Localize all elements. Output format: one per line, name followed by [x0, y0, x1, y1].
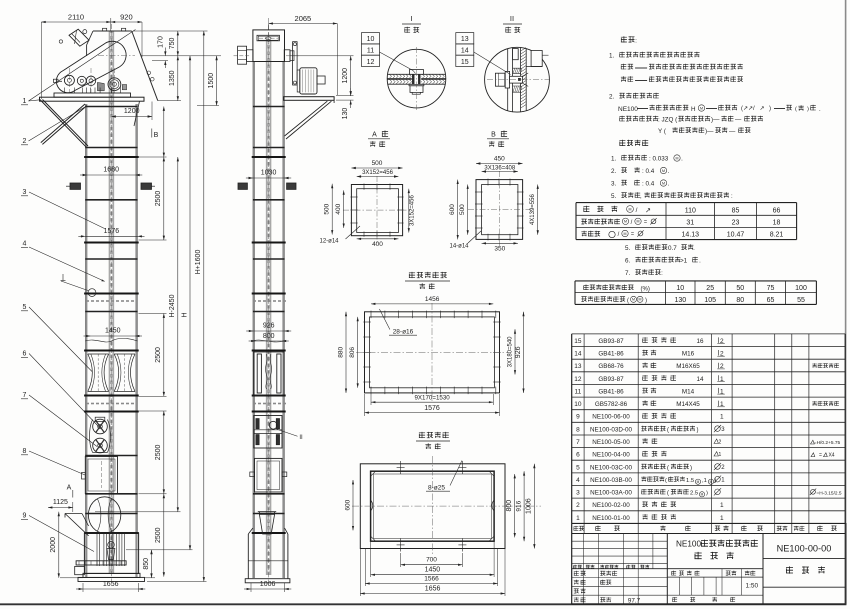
svg-text:)—: )— [711, 117, 720, 124]
svg-text:85: 85 [732, 207, 740, 214]
svg-text:600: 600 [344, 499, 351, 510]
svg-text:500: 500 [324, 203, 331, 214]
svg-text:450: 450 [494, 156, 505, 163]
svg-text:14: 14 [461, 48, 469, 55]
svg-text:14.13: 14.13 [682, 232, 700, 239]
svg-text:14: 14 [696, 376, 704, 383]
svg-text:GB41-86: GB41-86 [598, 351, 624, 358]
svg-text:1125: 1125 [53, 499, 68, 506]
svg-text:920: 920 [120, 13, 133, 22]
svg-text:—: — [729, 128, 736, 135]
svg-text:II: II [510, 14, 514, 23]
svg-text:M: M [637, 220, 640, 224]
svg-text:12: 12 [367, 59, 375, 66]
svg-text::: : [635, 38, 637, 45]
svg-text:1:50: 1:50 [745, 583, 758, 590]
svg-text:1450: 1450 [425, 567, 441, 574]
svg-text:80: 80 [736, 297, 744, 304]
svg-text:3X136=408: 3X136=408 [484, 165, 516, 171]
svg-text:66: 66 [773, 207, 781, 214]
svg-text:750: 750 [169, 37, 176, 49]
svg-text:23: 23 [732, 219, 740, 226]
svg-text:170: 170 [157, 36, 164, 48]
svg-text:2: 2 [720, 363, 724, 370]
svg-text:↗: ↗ [759, 106, 764, 112]
svg-text:4: 4 [576, 477, 580, 484]
svg-text:↗: ↗ [645, 208, 651, 215]
svg-text:850: 850 [143, 558, 150, 570]
svg-text:): ) [690, 465, 692, 471]
svg-text:NE100-03C-00: NE100-03C-00 [590, 464, 633, 471]
svg-text:M: M [624, 220, 627, 224]
svg-text:1656: 1656 [425, 586, 441, 593]
svg-text:75: 75 [767, 285, 775, 292]
svg-text:): ) [807, 107, 809, 113]
svg-text::: : [646, 141, 648, 148]
svg-text:1.5: 1.5 [686, 478, 694, 484]
svg-text:NE100-04-00: NE100-04-00 [592, 452, 630, 459]
svg-text:6: 6 [576, 452, 580, 459]
svg-text:1006: 1006 [526, 498, 533, 514]
svg-text:3X152=456: 3X152=456 [362, 170, 394, 176]
svg-text:1576: 1576 [104, 228, 120, 235]
svg-text:3.: 3. [611, 181, 617, 188]
svg-text:2: 2 [576, 502, 580, 509]
svg-text:1576: 1576 [424, 405, 440, 412]
svg-text:NE100-03A-00: NE100-03A-00 [590, 490, 632, 497]
svg-text:3: 3 [23, 189, 27, 196]
svg-text:11: 11 [575, 389, 582, 396]
svg-text:3: 3 [576, 490, 580, 497]
svg-text:16: 16 [696, 338, 704, 345]
svg-text:1656: 1656 [103, 581, 119, 588]
svg-text:)—: )— [705, 128, 714, 135]
svg-text:M14: M14 [682, 389, 695, 396]
svg-text:H-2450: H-2450 [169, 294, 176, 317]
svg-text:4X139=556: 4X139=556 [530, 194, 536, 226]
svg-text:8-ø25: 8-ø25 [428, 485, 445, 492]
svg-text:M: M [697, 480, 700, 484]
svg-text:>1: >1 [680, 258, 688, 265]
svg-text:700: 700 [426, 557, 437, 564]
svg-text:NE100-01-00: NE100-01-00 [592, 515, 630, 522]
svg-text:400: 400 [335, 203, 342, 214]
svg-text:2.: 2. [611, 168, 617, 175]
svg-text:,1: ,1 [702, 478, 707, 484]
svg-text:8: 8 [23, 448, 27, 455]
svg-text:2065: 2065 [295, 14, 312, 23]
svg-text:H: H [691, 106, 696, 113]
svg-text:28-ø16: 28-ø16 [393, 329, 414, 336]
svg-text:M: M [639, 298, 642, 302]
svg-text:15: 15 [461, 59, 469, 66]
svg-text:1500: 1500 [208, 73, 215, 89]
svg-text:800: 800 [506, 500, 513, 512]
svg-text:15: 15 [574, 338, 582, 345]
svg-text:): ) [697, 427, 699, 433]
svg-text:M: M [662, 181, 665, 185]
svg-text:1: 1 [720, 502, 724, 509]
svg-text:926: 926 [263, 323, 275, 330]
svg-text:M: M [632, 298, 635, 302]
svg-text:=: = [644, 220, 647, 226]
svg-text:7: 7 [23, 392, 27, 399]
svg-text:GB93-87: GB93-87 [598, 376, 624, 383]
svg-text:8: 8 [576, 426, 580, 433]
svg-text:100: 100 [795, 285, 807, 292]
svg-text:130: 130 [674, 297, 686, 304]
svg-text:2000: 2000 [50, 537, 57, 553]
svg-text:): ) [645, 298, 647, 304]
svg-text:2500: 2500 [155, 347, 162, 363]
svg-text:: 0.4: : 0.4 [642, 181, 655, 188]
svg-text:1: 1 [719, 452, 722, 458]
svg-text:110: 110 [685, 207, 696, 214]
svg-text:7: 7 [576, 439, 580, 446]
svg-text:NE100: NE100 [618, 106, 638, 113]
svg-text:880: 880 [337, 347, 344, 358]
svg-text:NE100-03D-00: NE100-03D-00 [590, 426, 633, 433]
svg-text:13: 13 [574, 363, 582, 370]
svg-text:1: 1 [576, 515, 580, 522]
svg-text:M: M [701, 493, 704, 497]
svg-text:B: B [154, 132, 159, 139]
svg-text:M16: M16 [682, 351, 695, 358]
svg-text:M: M [676, 156, 679, 160]
svg-text:10: 10 [676, 285, 684, 292]
svg-text:2500: 2500 [155, 445, 162, 461]
svg-text:2: 2 [720, 351, 724, 358]
svg-text:0.7: 0.7 [668, 245, 677, 252]
svg-text:(%): (%) [641, 286, 650, 292]
svg-text:5: 5 [576, 464, 580, 471]
svg-text:1006: 1006 [260, 581, 276, 588]
svg-text:I: I [410, 14, 412, 23]
svg-text:: 0.033: : 0.033 [649, 156, 669, 163]
svg-text:916: 916 [516, 500, 523, 511]
svg-text:/: / [636, 207, 638, 214]
svg-text:31: 31 [686, 219, 694, 226]
svg-text:1.: 1. [611, 156, 617, 163]
svg-text:II: II [299, 435, 303, 441]
svg-text:=: = [819, 453, 822, 459]
svg-text:=H-3.15/2.5: =H-3.15/2.5 [816, 491, 842, 497]
svg-text:350: 350 [494, 245, 505, 252]
svg-text:Y (: Y ( [658, 128, 667, 135]
svg-text:2500: 2500 [155, 527, 162, 543]
svg-text:NE100-02-00: NE100-02-00 [592, 502, 630, 509]
svg-text:(: ( [627, 298, 629, 304]
svg-text:6: 6 [23, 351, 27, 358]
svg-text:H: H [181, 312, 188, 317]
svg-text:1: 1 [720, 389, 724, 396]
svg-text:X4: X4 [828, 453, 834, 459]
svg-text:50: 50 [736, 285, 744, 292]
svg-text:8.21: 8.21 [770, 232, 784, 239]
svg-text:): ) [706, 491, 708, 497]
svg-text:NE100-06-00: NE100-06-00 [592, 414, 630, 421]
svg-text:1030: 1030 [261, 170, 277, 177]
svg-text:14: 14 [574, 351, 582, 358]
svg-text:GB5782-86: GB5782-86 [595, 401, 628, 408]
svg-text:10.47: 10.47 [727, 232, 745, 239]
svg-text:A: A [372, 132, 377, 139]
svg-text:25: 25 [706, 285, 714, 292]
svg-text:130: 130 [342, 108, 349, 120]
svg-text:M16X65: M16X65 [676, 363, 700, 370]
svg-text:2.5: 2.5 [690, 491, 698, 497]
svg-text:926: 926 [515, 346, 522, 358]
svg-text:): ) [769, 106, 771, 112]
svg-text:55: 55 [797, 297, 805, 304]
svg-text:M: M [662, 169, 665, 173]
svg-text:1200: 1200 [124, 108, 140, 115]
svg-text:12: 12 [574, 376, 582, 383]
svg-text:5.: 5. [611, 193, 617, 200]
svg-text:5: 5 [23, 304, 27, 311]
svg-text:M: M [629, 207, 632, 211]
svg-text:9: 9 [576, 414, 580, 421]
svg-text:(: ( [667, 465, 669, 471]
svg-text:11: 11 [367, 48, 374, 55]
svg-text:600: 600 [449, 204, 456, 215]
svg-text:500: 500 [372, 160, 383, 167]
svg-text:2: 2 [719, 439, 722, 445]
svg-text:1456: 1456 [425, 296, 440, 303]
svg-text:A: A [67, 485, 72, 492]
svg-text:NE100-05-00: NE100-05-00 [592, 439, 630, 446]
svg-text:7.: 7. [625, 270, 631, 277]
svg-text:1: 1 [23, 98, 27, 105]
svg-text:1: 1 [720, 515, 724, 522]
svg-text:4: 4 [23, 241, 27, 248]
svg-text:NE100-03B-00: NE100-03B-00 [590, 477, 632, 484]
svg-text:14-ø14: 14-ø14 [449, 244, 469, 250]
svg-text:13: 13 [461, 36, 469, 43]
svg-text:1: 1 [720, 414, 724, 421]
svg-text:105: 105 [704, 297, 716, 304]
svg-text:2500: 2500 [155, 191, 162, 207]
svg-text:65: 65 [767, 297, 775, 304]
svg-text:500: 500 [459, 204, 466, 215]
svg-text:1566: 1566 [424, 576, 439, 583]
svg-text:400: 400 [372, 241, 383, 248]
svg-text:2.: 2. [609, 94, 615, 101]
svg-text:1450: 1450 [105, 328, 121, 335]
svg-text:6.: 6. [625, 258, 631, 265]
svg-text:800: 800 [263, 333, 275, 340]
svg-text:—: — [735, 117, 742, 124]
svg-text:(: ( [795, 107, 797, 113]
svg-text:(: ( [667, 491, 669, 497]
svg-text:3X152=456: 3X152=456 [410, 195, 416, 227]
svg-text:1350: 1350 [169, 70, 176, 86]
svg-text:GB41-86: GB41-86 [598, 389, 624, 396]
svg-text:M14X45: M14X45 [676, 401, 700, 408]
svg-text:M: M [710, 480, 713, 484]
svg-text:(: ( [665, 478, 667, 484]
svg-text:1680: 1680 [103, 167, 119, 174]
svg-text:: 0.4: : 0.4 [642, 168, 655, 175]
svg-text:NE100: NE100 [676, 540, 701, 549]
svg-text:97.7: 97.7 [628, 597, 641, 604]
svg-text:10: 10 [574, 401, 582, 408]
svg-text:GB93-87: GB93-87 [598, 338, 624, 345]
svg-text:10: 10 [367, 36, 375, 43]
svg-text:5.: 5. [625, 245, 631, 252]
svg-text:(↗↗/: (↗↗/ [741, 106, 755, 112]
svg-text:2110: 2110 [68, 13, 84, 22]
svg-text:M: M [624, 232, 627, 236]
svg-text:12-ø14: 12-ø14 [319, 239, 339, 245]
svg-text:(: ( [667, 427, 669, 433]
svg-text:18: 18 [773, 219, 781, 226]
svg-text:1: 1 [720, 401, 724, 408]
svg-text:=: = [631, 232, 634, 238]
svg-text:2: 2 [23, 138, 27, 145]
svg-text:9: 9 [23, 513, 27, 520]
svg-text:M: M [700, 106, 703, 110]
svg-text:=H/0.2+5.75: =H/0.2+5.75 [814, 440, 841, 446]
svg-text:1200: 1200 [342, 68, 349, 84]
svg-text:H+1600: H+1600 [195, 250, 202, 275]
svg-text:3X180=540: 3X180=540 [507, 336, 513, 368]
svg-text:B: B [491, 132, 496, 139]
svg-text:9X170=1530: 9X170=1530 [414, 395, 450, 402]
svg-text:NE100-00-00: NE100-00-00 [777, 544, 832, 554]
svg-text:GB68-76: GB68-76 [598, 363, 624, 370]
svg-text:1.: 1. [609, 53, 615, 60]
svg-text:806: 806 [349, 347, 356, 358]
svg-text:: JZQ (: : JZQ ( [658, 117, 678, 124]
